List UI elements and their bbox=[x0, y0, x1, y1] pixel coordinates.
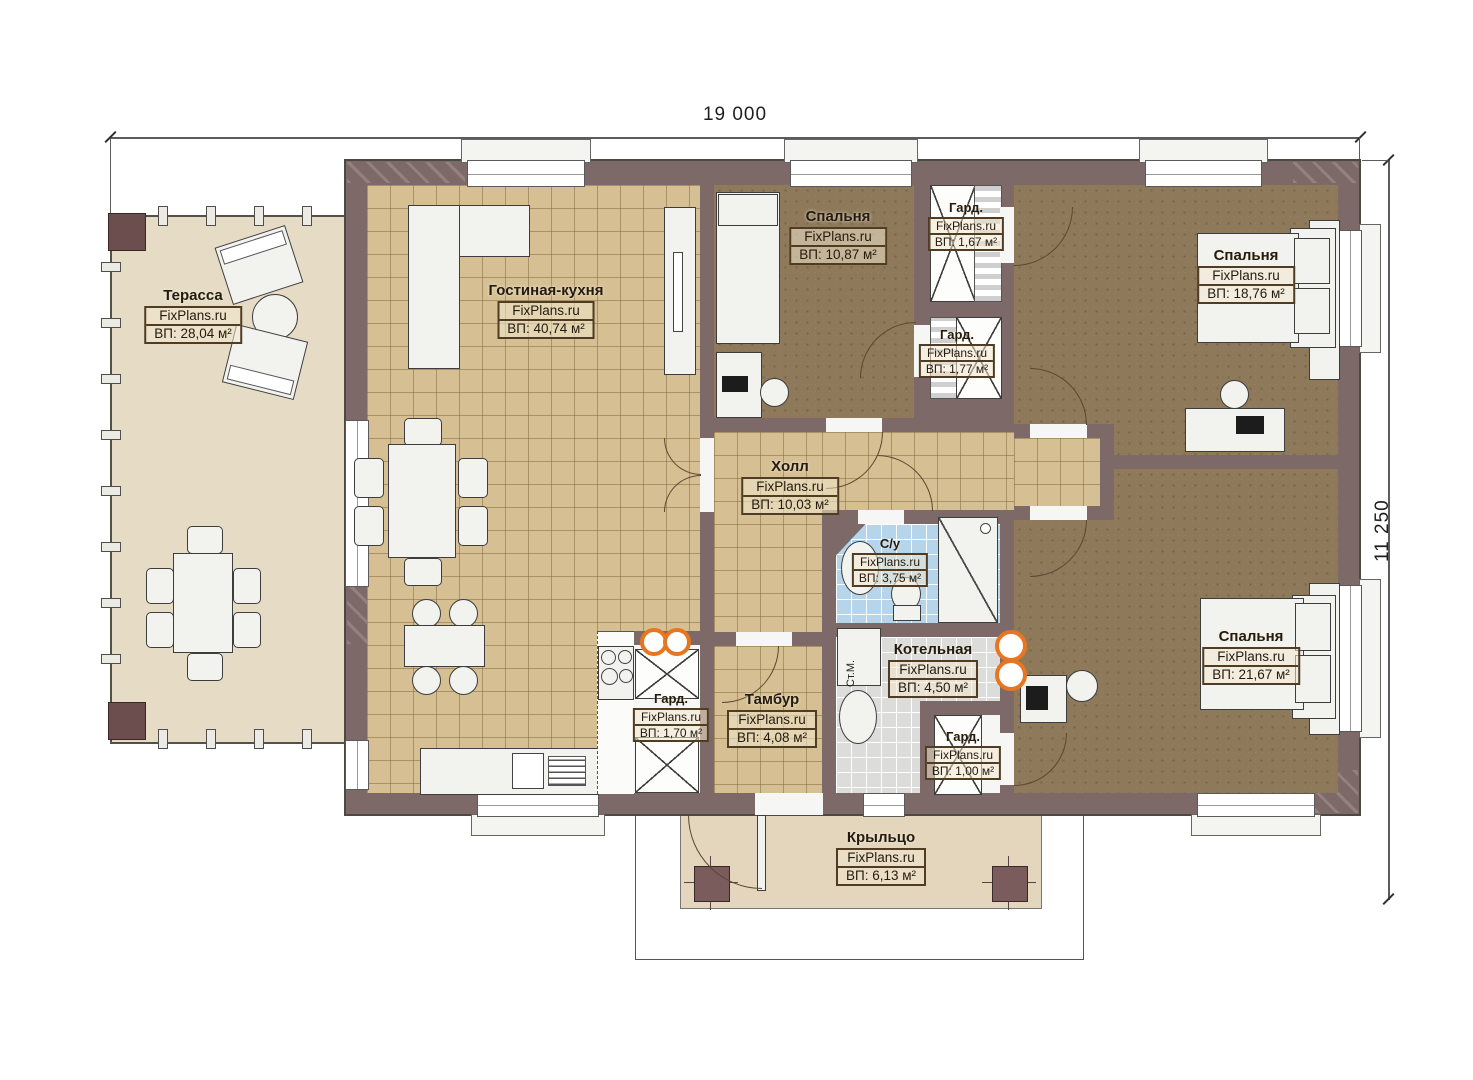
pillow bbox=[1295, 655, 1331, 703]
baluster bbox=[101, 486, 121, 496]
room-label-terrace: Терасса FixPlans.ruВП: 28,04 м² bbox=[144, 287, 242, 344]
room-label-bathroom: С/у FixPlans.ruВП: 3,75 м² bbox=[852, 536, 928, 587]
pillow bbox=[718, 194, 778, 226]
room-label-wardrobe4: Гард. FixPlans.ruВП: 1,00 м² bbox=[925, 729, 1001, 780]
oven bbox=[512, 753, 544, 789]
desk-chair bbox=[1220, 380, 1249, 409]
door-opening bbox=[1030, 506, 1087, 520]
burner bbox=[619, 669, 633, 683]
door-opening bbox=[1000, 733, 1014, 785]
door-opening bbox=[755, 793, 823, 815]
room-label-porch: Крыльцо FixPlans.ruВП: 6,13 м² bbox=[836, 829, 926, 886]
room-label-bedroom1: Спальня FixPlans.ruВП: 10,87 м² bbox=[789, 208, 887, 265]
room-label-wardrobe2: Гард. FixPlans.ruВП: 1,77 м² bbox=[919, 327, 995, 378]
baluster bbox=[101, 654, 121, 664]
window-sill bbox=[1359, 224, 1381, 353]
small-table bbox=[404, 625, 485, 667]
window-sill bbox=[1359, 579, 1381, 738]
window-sill bbox=[1191, 814, 1321, 836]
room-label-wardrobe3: Гард. FixPlans.ruВП: 1,70 м² bbox=[633, 691, 709, 742]
window bbox=[790, 160, 912, 187]
wardrobe4-wall bbox=[920, 701, 1000, 715]
terrace-post bbox=[108, 213, 146, 251]
pillow bbox=[1294, 288, 1330, 334]
dining-chair bbox=[404, 418, 442, 446]
burner bbox=[601, 668, 618, 685]
dining-table bbox=[388, 444, 456, 558]
hall-corridor-floor bbox=[1014, 438, 1100, 506]
desk-chair bbox=[760, 378, 789, 407]
baluster bbox=[101, 598, 121, 608]
baluster bbox=[302, 206, 312, 226]
chair bbox=[412, 666, 441, 695]
terrace-chair bbox=[187, 653, 223, 681]
dimension-extension-line bbox=[110, 138, 111, 214]
shower-drain bbox=[980, 523, 991, 534]
dining-chair bbox=[458, 458, 488, 498]
door-opening bbox=[858, 510, 904, 524]
dining-chair bbox=[404, 558, 442, 586]
dimension-extension-line bbox=[1359, 138, 1360, 160]
baluster bbox=[158, 729, 168, 749]
pillow bbox=[1295, 603, 1331, 651]
room-label-hall: Холл FixPlans.ruВП: 10,03 м² bbox=[741, 458, 839, 515]
chair bbox=[449, 666, 478, 695]
terrace-chair bbox=[146, 612, 174, 648]
desk bbox=[1185, 408, 1285, 452]
baluster bbox=[101, 262, 121, 272]
toilet-tank bbox=[893, 605, 921, 621]
baluster bbox=[101, 430, 121, 440]
window bbox=[467, 160, 585, 187]
chair bbox=[449, 599, 478, 628]
width-dimension-label: 19 000 bbox=[703, 104, 767, 126]
shower bbox=[938, 517, 998, 623]
boiler-unit bbox=[995, 630, 1027, 662]
door-opening bbox=[1030, 424, 1087, 438]
dish-rack bbox=[548, 756, 586, 786]
hob-burner bbox=[663, 628, 691, 656]
tv bbox=[1236, 416, 1264, 434]
chair bbox=[1066, 670, 1098, 702]
chair bbox=[412, 599, 441, 628]
baluster bbox=[206, 206, 216, 226]
tv bbox=[673, 252, 683, 332]
window bbox=[477, 793, 599, 817]
window bbox=[345, 740, 369, 790]
dimension-extension-line bbox=[1362, 160, 1388, 161]
tv bbox=[722, 376, 748, 392]
terrace-chair bbox=[146, 568, 174, 604]
room-label-vestibule: Тамбур FixPlans.ruВП: 4,08 м² bbox=[727, 691, 817, 748]
window-sill bbox=[471, 814, 605, 836]
washing-machine-label: Ст.М. bbox=[845, 631, 859, 687]
pillow bbox=[1294, 238, 1330, 284]
baluster bbox=[206, 729, 216, 749]
sink bbox=[839, 690, 877, 744]
baluster bbox=[302, 729, 312, 749]
terrace-chair bbox=[233, 568, 261, 604]
baluster bbox=[101, 374, 121, 384]
baluster bbox=[101, 542, 121, 552]
floor-plan: 19 000 11 250 bbox=[0, 0, 1473, 1080]
baluster bbox=[254, 206, 264, 226]
room-label-bedroom2: Спальня FixPlans.ruВП: 18,76 м² bbox=[1197, 247, 1295, 304]
dining-chair bbox=[354, 458, 384, 498]
terrace-dining-table bbox=[173, 553, 233, 653]
baluster bbox=[101, 318, 121, 328]
room-label-living-kitchen: Гостиная-кухня FixPlans.ruВП: 40,74 м² bbox=[489, 282, 604, 339]
window bbox=[345, 420, 369, 587]
window bbox=[1338, 230, 1362, 347]
porch-post bbox=[992, 866, 1028, 902]
wall-hatch bbox=[347, 162, 465, 183]
terrace-post bbox=[108, 702, 146, 740]
terrace-chair bbox=[233, 612, 261, 648]
window bbox=[1145, 160, 1262, 187]
door-opening bbox=[736, 632, 792, 646]
terrace-chair bbox=[187, 526, 223, 554]
room-label-wardrobe1: Гард. FixPlans.ruВП: 1,67 м² bbox=[928, 200, 1004, 251]
door-opening bbox=[826, 418, 882, 432]
sofa bbox=[408, 205, 460, 369]
dining-chair bbox=[458, 506, 488, 546]
door-opening bbox=[700, 438, 714, 512]
boiler-unit bbox=[995, 659, 1027, 691]
window bbox=[1338, 585, 1362, 732]
window bbox=[1197, 793, 1315, 817]
window bbox=[863, 793, 905, 817]
dining-chair bbox=[354, 506, 384, 546]
wall-hatch bbox=[1293, 162, 1358, 183]
burner bbox=[601, 650, 616, 665]
room-label-bedroom3: Спальня FixPlans.ruВП: 21,67 м² bbox=[1202, 628, 1300, 685]
bedroom-divider-wall bbox=[1100, 455, 1338, 469]
baluster bbox=[158, 206, 168, 226]
wardrobe-cabinet bbox=[635, 737, 699, 793]
burner bbox=[618, 650, 632, 664]
room-label-boiler: Котельная FixPlans.ruВП: 4,50 м² bbox=[888, 641, 978, 698]
corridor-end-wall bbox=[1100, 424, 1114, 520]
tv bbox=[1026, 686, 1048, 710]
height-dimension-label: 11 250 bbox=[1372, 499, 1394, 562]
washing-machine bbox=[837, 628, 881, 686]
baluster bbox=[254, 729, 264, 749]
